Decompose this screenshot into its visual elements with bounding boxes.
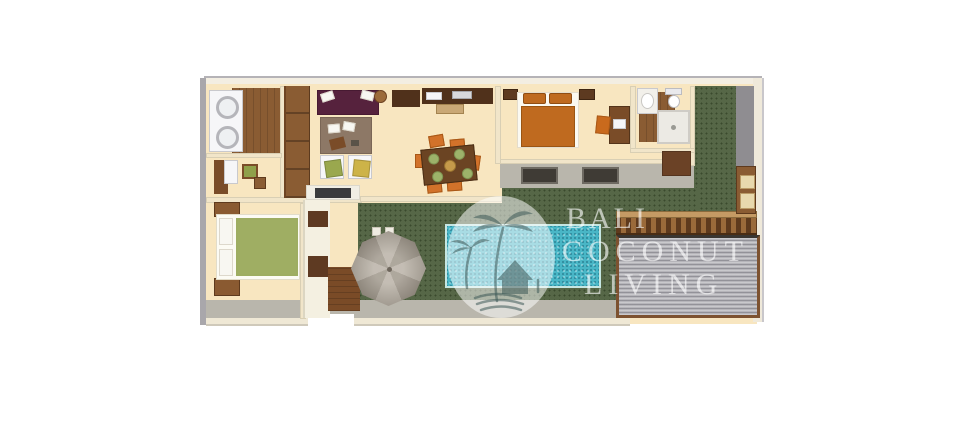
cabinet-niche bbox=[308, 256, 328, 277]
palm-frond-icon bbox=[452, 247, 471, 254]
plate bbox=[461, 168, 473, 180]
waves-icon bbox=[477, 300, 523, 304]
master-bed-pillow bbox=[549, 93, 572, 104]
plate bbox=[453, 148, 465, 160]
guest-bed-mattress bbox=[236, 218, 298, 276]
plate bbox=[432, 171, 444, 183]
watermark-logo-circle bbox=[447, 196, 555, 318]
watermark-line: LIVING bbox=[584, 268, 749, 301]
wall bbox=[206, 153, 282, 158]
center-bowl bbox=[444, 159, 457, 172]
beach-hut-icon bbox=[497, 260, 533, 280]
hall-wardrobe bbox=[284, 86, 310, 198]
nightstand bbox=[214, 278, 240, 296]
master-bed-mattress bbox=[521, 106, 575, 147]
kitchen-sink bbox=[426, 92, 442, 100]
coffee-table-book bbox=[329, 136, 346, 150]
door-mat bbox=[521, 167, 558, 184]
washer-door-icon bbox=[216, 96, 239, 119]
laptop bbox=[613, 119, 626, 129]
kitchen-counter bbox=[392, 90, 420, 107]
armchair bbox=[320, 155, 344, 179]
outer-wall-bottom bbox=[206, 318, 630, 326]
wall bbox=[495, 86, 501, 164]
wall bbox=[630, 86, 636, 152]
palm-tree-icon bbox=[495, 228, 503, 301]
armchair-cushion bbox=[324, 159, 343, 178]
shower-tray bbox=[657, 110, 690, 144]
floorplan-render: BALI COCONUT LIVING bbox=[0, 0, 960, 426]
armchair-cushion bbox=[352, 159, 371, 178]
palm-frond-icon bbox=[503, 224, 533, 232]
beach-hut-icon bbox=[502, 280, 528, 294]
door-mat bbox=[582, 167, 619, 184]
nightstand bbox=[503, 89, 518, 100]
shower-drain bbox=[671, 125, 676, 130]
bench-slat bbox=[740, 175, 755, 189]
nightstand bbox=[579, 89, 595, 100]
dining-table bbox=[420, 144, 477, 185]
toilet-bowl bbox=[668, 95, 680, 108]
master-bed-pillow bbox=[523, 93, 546, 104]
palm-tree-icon bbox=[466, 248, 471, 288]
kitchen-island bbox=[436, 104, 464, 114]
living-rug bbox=[320, 117, 372, 154]
sink-basin bbox=[641, 93, 654, 109]
stove bbox=[452, 91, 472, 99]
cabinet-niche bbox=[308, 211, 328, 227]
side-table bbox=[374, 90, 387, 103]
desk-chair bbox=[595, 115, 611, 134]
outdoor-kitchen-column bbox=[303, 200, 330, 318]
parasol-hub bbox=[387, 267, 392, 272]
palm-frond-icon bbox=[473, 224, 503, 232]
washer-dryer-stack bbox=[209, 90, 243, 152]
outdoor-cabinet bbox=[662, 151, 691, 176]
plate bbox=[428, 153, 440, 165]
parasol-umbrella bbox=[351, 231, 426, 306]
palm-frond-icon bbox=[471, 239, 490, 248]
office-stool bbox=[254, 177, 266, 189]
walkway-bottom bbox=[206, 300, 630, 320]
guest-bed-pillow bbox=[219, 218, 233, 245]
outdoor-chair bbox=[372, 227, 381, 236]
watermark-line: COCONUT bbox=[562, 235, 749, 268]
watermark-logo bbox=[447, 196, 555, 318]
toilet-tank bbox=[665, 88, 682, 95]
bathroom-vanity bbox=[637, 88, 658, 114]
watermark-line: BALI bbox=[566, 202, 749, 235]
office-dresser bbox=[224, 160, 238, 184]
washer-door-icon bbox=[216, 126, 239, 149]
coffee-table-magazine bbox=[342, 121, 355, 132]
palm-frond-icon bbox=[503, 211, 533, 226]
coffee-table-paper bbox=[328, 123, 341, 133]
dining-chair bbox=[428, 134, 445, 148]
waves-icon bbox=[475, 294, 521, 298]
waves-icon bbox=[481, 307, 521, 311]
armchair bbox=[348, 155, 372, 179]
bbq-counter bbox=[306, 185, 360, 200]
coffee-table-item bbox=[351, 140, 359, 146]
palm-frond-icon bbox=[451, 240, 471, 248]
guest-bed-pillow bbox=[219, 249, 233, 276]
watermark-text: BALI COCONUT LIVING bbox=[562, 202, 749, 301]
bbq-grill bbox=[315, 188, 351, 198]
